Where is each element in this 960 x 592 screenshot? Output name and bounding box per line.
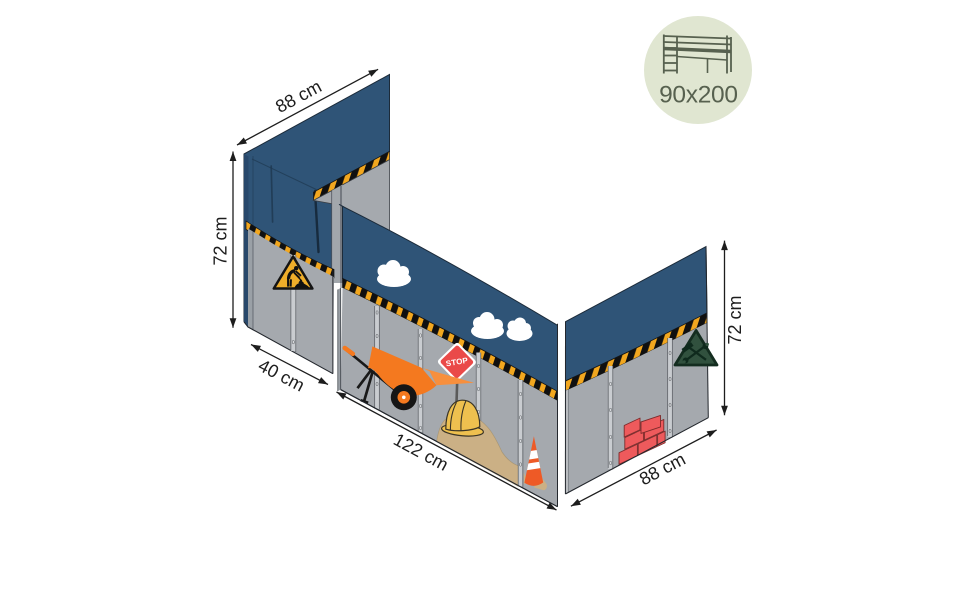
svg-text:72 cm: 72 cm — [725, 295, 745, 344]
svg-text:90x200: 90x200 — [659, 81, 738, 108]
svg-text:72 cm: 72 cm — [211, 216, 231, 265]
